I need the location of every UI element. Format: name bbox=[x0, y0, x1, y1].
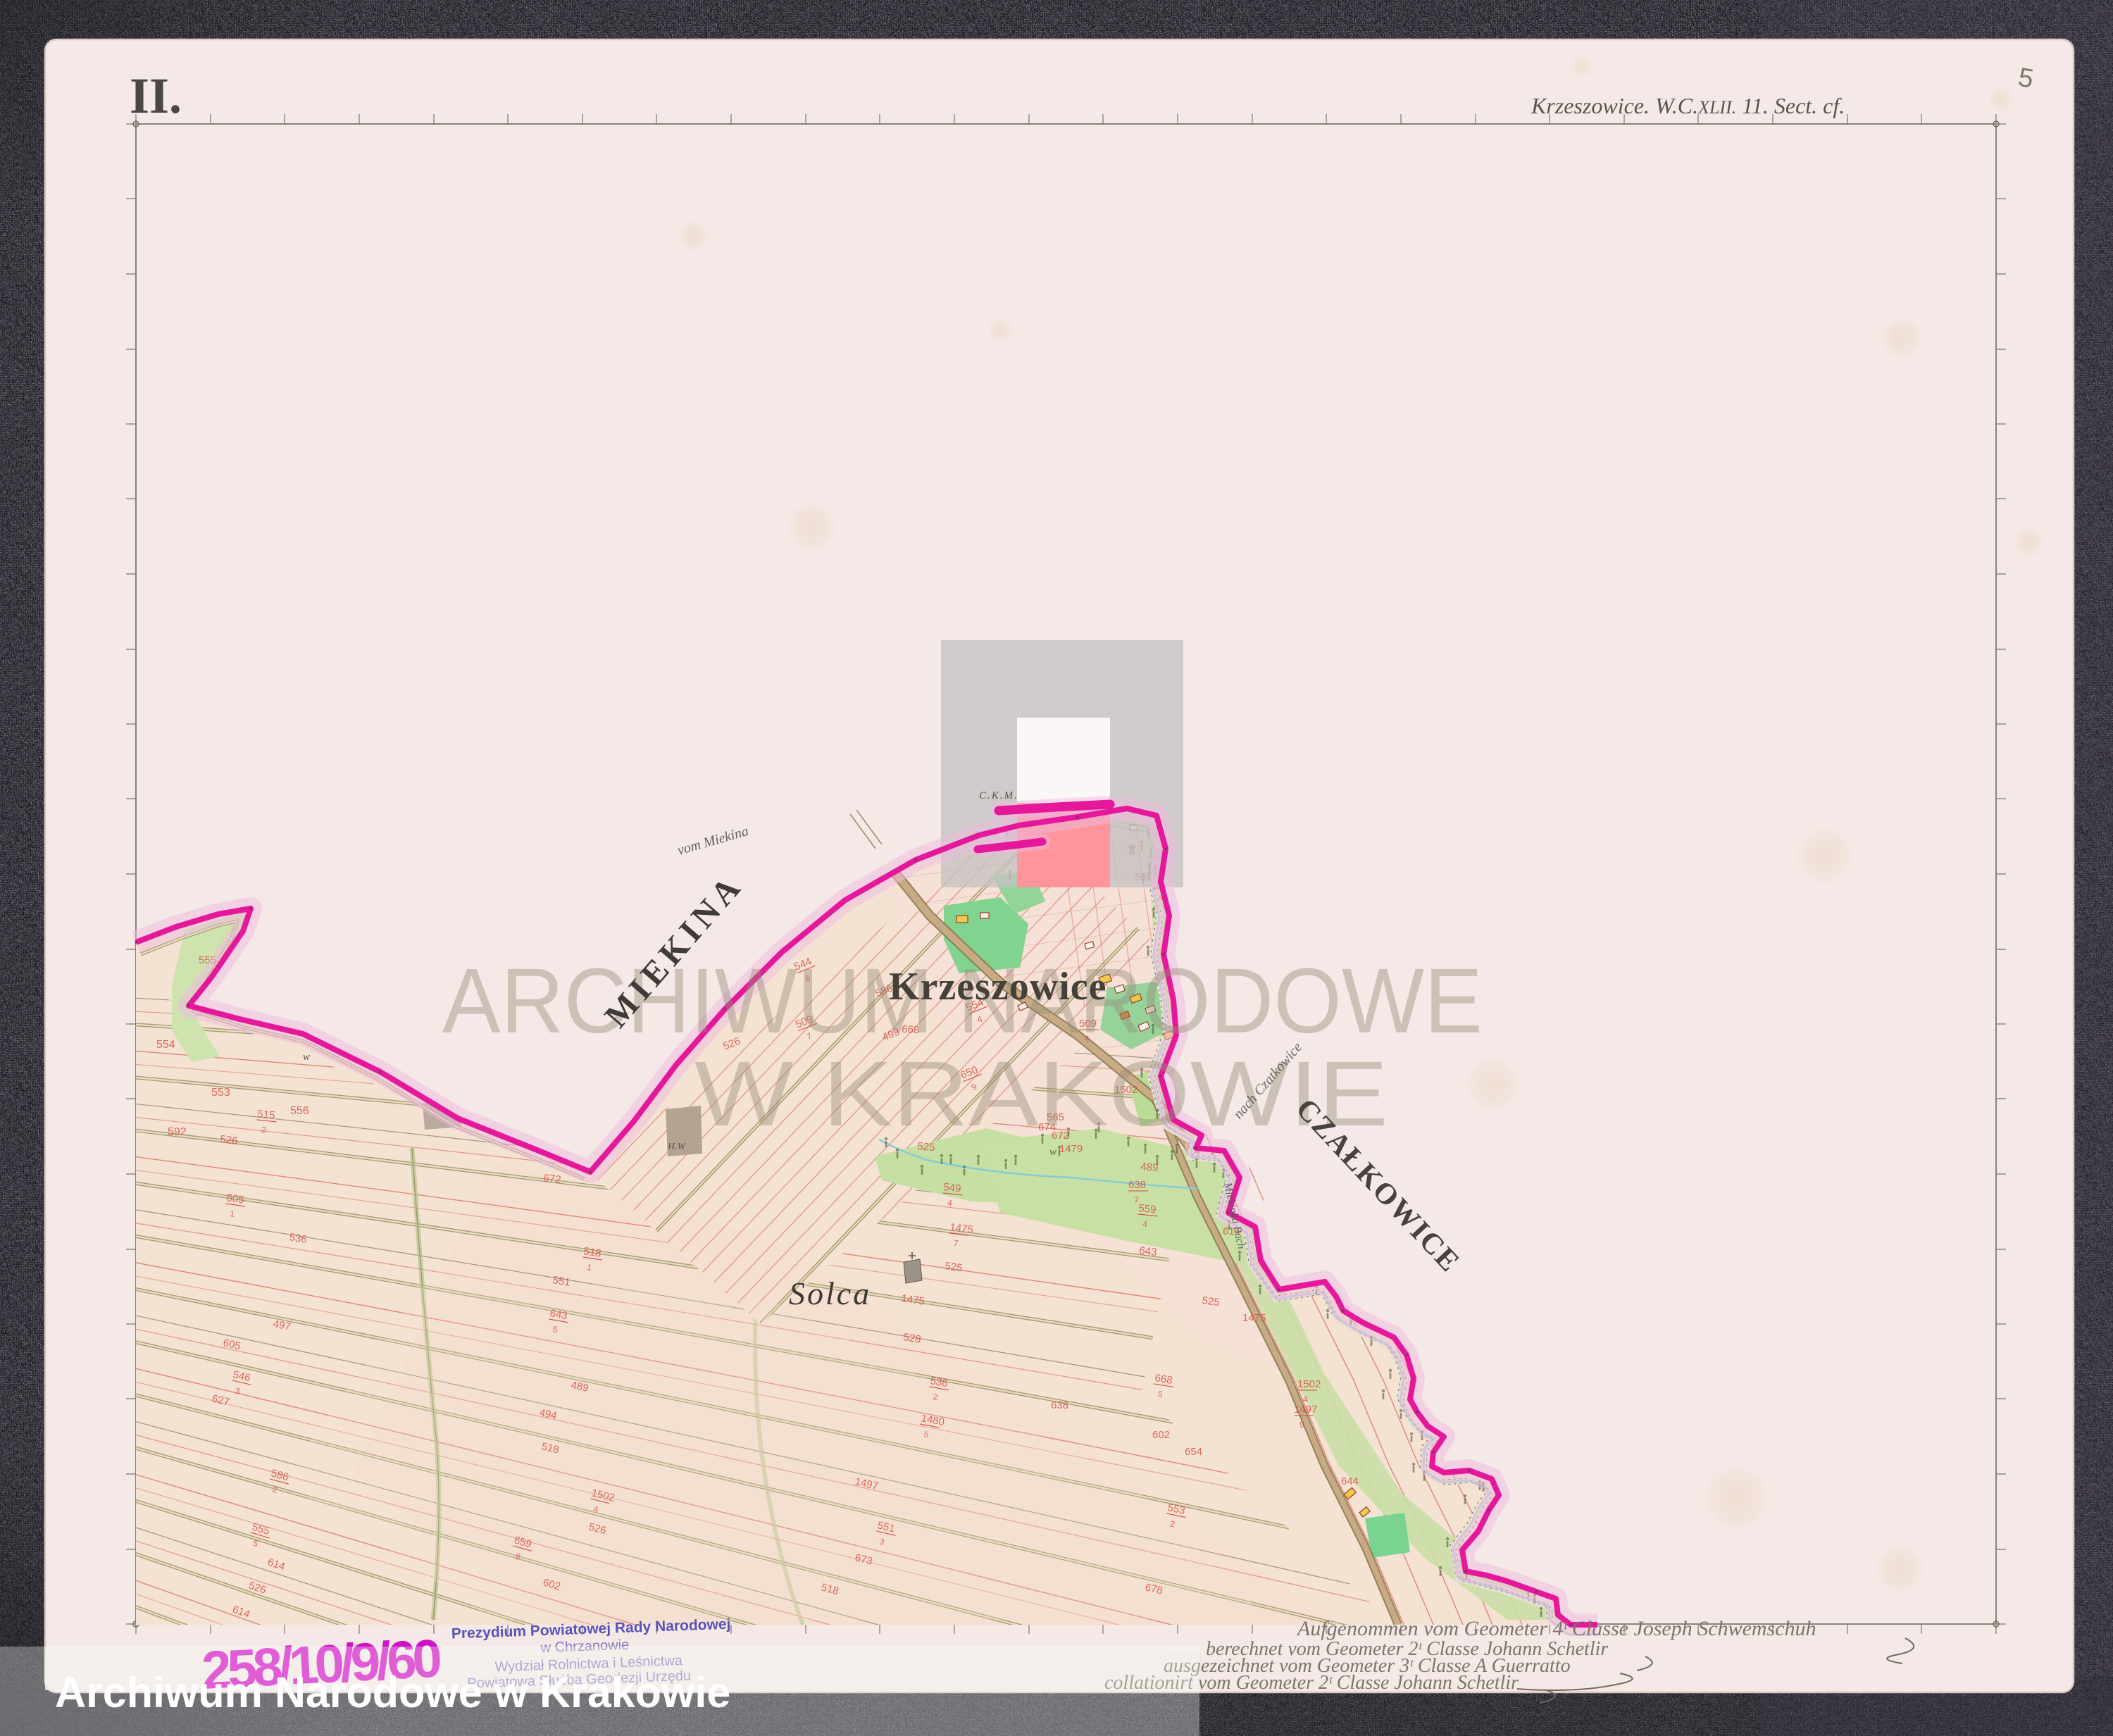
svg-text:654: 654 bbox=[1185, 1446, 1202, 1458]
svg-text:556: 556 bbox=[290, 1105, 309, 1117]
svg-text:9: 9 bbox=[1299, 1420, 1304, 1430]
svg-text:w: w bbox=[303, 1051, 310, 1063]
svg-text:Aufgenommen vom Geometer 4ᵗ Cl: Aufgenommen vom Geometer 4ᵗ Classe Josep… bbox=[1296, 1617, 1816, 1640]
svg-text:592: 592 bbox=[168, 1126, 187, 1138]
svg-text:w: w bbox=[1049, 1147, 1056, 1158]
svg-text:553: 553 bbox=[211, 1087, 230, 1099]
svg-text:554: 554 bbox=[156, 1039, 175, 1051]
svg-text:II.: II. bbox=[130, 68, 182, 124]
svg-text:Krzeszowice. W.C.XLII. 11. Sec: Krzeszowice. W.C.XLII. 11. Sect. cf. bbox=[1531, 93, 1845, 118]
svg-text:1497: 1497 bbox=[1294, 1404, 1317, 1416]
svg-text:4: 4 bbox=[1303, 1394, 1308, 1404]
svg-text:638: 638 bbox=[1051, 1399, 1068, 1411]
svg-text:525: 525 bbox=[944, 1260, 963, 1274]
svg-text:643: 643 bbox=[1139, 1244, 1158, 1259]
svg-text:H.W: H.W bbox=[667, 1142, 687, 1152]
svg-text:672: 672 bbox=[543, 1172, 562, 1186]
svg-text:644: 644 bbox=[1341, 1475, 1359, 1487]
svg-text:602: 602 bbox=[1152, 1429, 1170, 1441]
svg-text:C.K.M.: C.K.M. bbox=[979, 790, 1018, 801]
svg-text:559: 559 bbox=[1138, 1202, 1157, 1216]
svg-text:1475: 1475 bbox=[1242, 1312, 1266, 1324]
svg-text:1502: 1502 bbox=[1297, 1378, 1321, 1390]
svg-text:Solca: Solca bbox=[789, 1275, 871, 1311]
svg-text:515: 515 bbox=[257, 1108, 276, 1122]
svg-text:525: 525 bbox=[1201, 1294, 1220, 1309]
svg-text:Krzeszowice: Krzeszowice bbox=[889, 965, 1107, 1008]
svg-text:7: 7 bbox=[1134, 1195, 1139, 1205]
svg-text:Archiwum Narodowe w Krakowie: Archiwum Narodowe w Krakowie bbox=[55, 1668, 730, 1716]
svg-text:549: 549 bbox=[943, 1181, 962, 1195]
svg-text:526: 526 bbox=[220, 1133, 239, 1147]
svg-text:638: 638 bbox=[1128, 1179, 1146, 1191]
svg-text:489: 489 bbox=[1140, 1161, 1159, 1174]
